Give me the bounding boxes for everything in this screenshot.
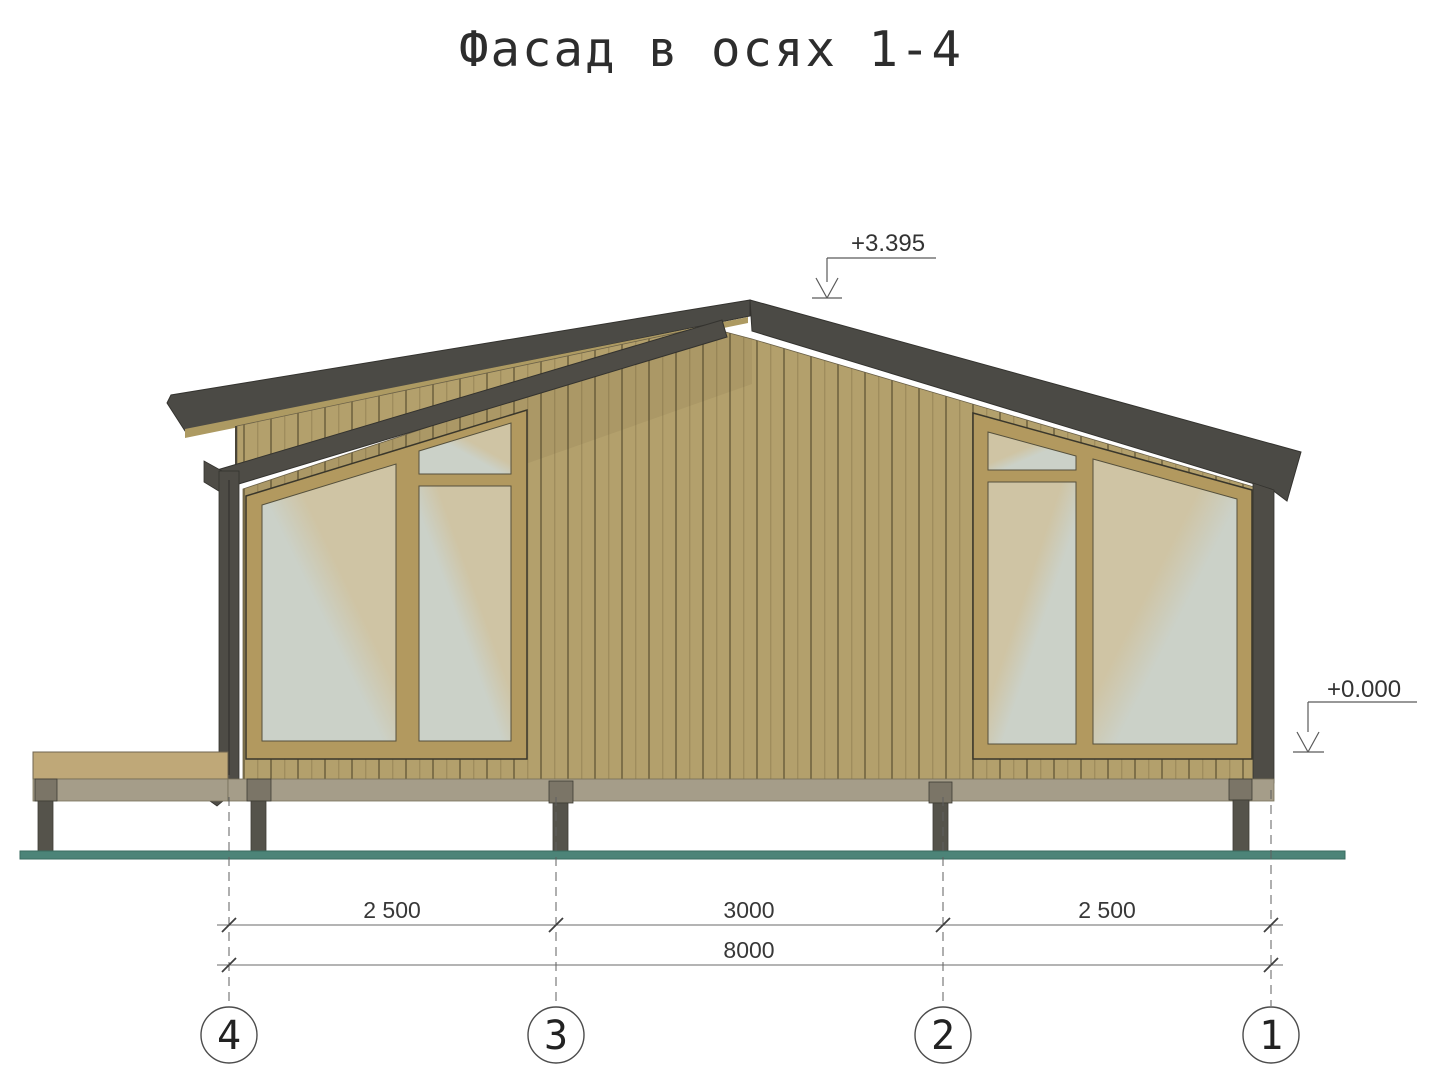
pile-post — [553, 803, 568, 858]
axis-bubbles: 4 3 2 1 — [201, 1007, 1299, 1063]
dimension-label-total: 8000 — [723, 937, 774, 963]
axis-label-2: 2 — [931, 1013, 955, 1059]
axis-label-3: 3 — [544, 1013, 568, 1059]
pile-cap — [1229, 779, 1252, 800]
pile-post — [933, 803, 948, 858]
right-corner-trim — [1253, 483, 1274, 783]
left-window-glass-lower — [419, 486, 511, 741]
facade-drawing-sheet: +3.395 +0.000 2 500 3000 2 500 8000 4 3 … — [0, 0, 1442, 1080]
pile-post — [38, 801, 53, 854]
ground-line — [20, 851, 1345, 859]
pile-post — [1233, 800, 1249, 853]
right-window-glass-large — [1093, 459, 1237, 744]
ridge-elevation-label: +3.395 — [851, 230, 925, 257]
page-title: Фасад в осях 1-4 — [459, 21, 963, 78]
axis-label-4: 4 — [217, 1013, 241, 1059]
dimension-label-3-2: 3000 — [723, 897, 774, 923]
left-window-glass-large — [262, 464, 396, 741]
ground-elevation-label: +0.000 — [1327, 676, 1401, 703]
pile-post — [251, 801, 266, 856]
elevation-arrow-icon — [1293, 732, 1324, 752]
dimension-row-segments: 2 500 3000 2 500 — [217, 897, 1283, 932]
pile-cap — [929, 782, 952, 803]
dimension-row-total: 8000 — [217, 937, 1283, 972]
deck-frame-band — [33, 779, 228, 801]
dimension-label-4-3: 2 500 — [363, 897, 421, 923]
pile-cap — [549, 781, 573, 803]
leader-line — [1308, 702, 1417, 732]
elevation-marker-ridge: +3.395 — [812, 230, 936, 298]
leader-line — [827, 258, 936, 282]
floor-band — [228, 779, 1274, 801]
pile-cap — [35, 779, 57, 801]
axis-label-1: 1 — [1259, 1013, 1283, 1059]
facade-elevation-drawing: +3.395 +0.000 2 500 3000 2 500 8000 4 3 … — [0, 0, 1442, 1080]
elevation-marker-ground: +0.000 — [1293, 676, 1417, 752]
right-window-glass-lower — [988, 482, 1076, 744]
dimension-label-2-1: 2 500 — [1078, 897, 1136, 923]
deck-platform — [33, 752, 228, 779]
pile-cap — [247, 779, 271, 801]
